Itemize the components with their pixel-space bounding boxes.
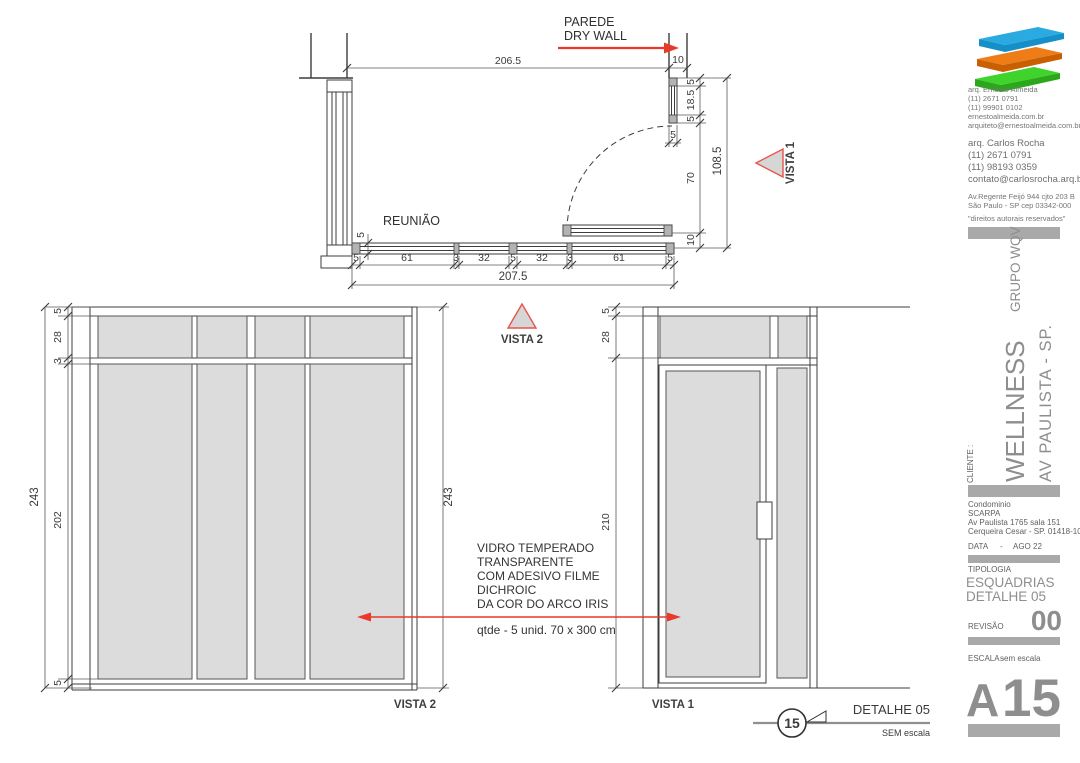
detail-title: DETALHE 05 — [853, 702, 930, 717]
vista1-transom-glass — [660, 316, 807, 358]
dim-offset-10: 10 — [685, 234, 697, 246]
arch1-email: arquiteto@ernestoalmeida.com.br — [968, 121, 1080, 130]
arch1-phone1: (11) 2671 0791 — [968, 94, 1018, 103]
date-label: DATA — [968, 542, 989, 551]
v2-total-right: 243 — [443, 487, 455, 506]
type-line1: ESQUADRIAS — [966, 575, 1055, 590]
v2-dim-0: 5 — [52, 308, 64, 314]
side-partition-plan — [321, 80, 352, 268]
dim-chain-4: 5 — [510, 252, 516, 264]
tipologia-label: TIPOLOGIA — [968, 565, 1012, 574]
elevation-vista2: 5 28 3 202 5 243 243 VISTA 2 — [29, 303, 455, 711]
note-line-3: DICHROIC — [477, 583, 537, 597]
revision-label: REVISÃO — [968, 622, 1004, 631]
vista2-transom-glass — [98, 316, 404, 358]
v1-dim-1: 28 — [600, 331, 612, 343]
sheet-prefix: A — [966, 674, 999, 726]
dim-chain-0: 5 — [353, 252, 359, 264]
arch2-email: contato@carlosrocha.arq.br — [968, 174, 1080, 185]
divider-bar-2 — [968, 485, 1060, 497]
scale-value: sem escala — [1000, 654, 1041, 663]
v2-dim-4: 5 — [52, 680, 64, 686]
note-line-0: VIDRO TEMPERADO — [477, 541, 594, 555]
wall-top-left — [299, 33, 353, 78]
room-label: REUNIÃO — [383, 214, 440, 228]
divider-bar-3 — [968, 555, 1060, 563]
vista2-main-glass — [98, 364, 404, 679]
client-line-2: Av Paulista 1765 sala 151 — [968, 518, 1061, 527]
glass-note: VIDRO TEMPERADO TRANSPARENTE COM ADESIVO… — [357, 541, 681, 637]
arch1-name: arq. Ernesto Almeida — [968, 85, 1038, 94]
v2-dim-2: 3 — [52, 358, 64, 364]
date-sep: - — [1000, 542, 1003, 551]
dim-chain-6: 3 — [567, 252, 573, 264]
date-value: AGO 22 — [1013, 542, 1042, 551]
dim-side-total: 108.5 — [712, 147, 724, 176]
dim-top: 206.5 — [495, 55, 521, 67]
dim-seg-glass: 18.5 — [685, 90, 697, 111]
note-qty: qtde - 5 unid. 70 x 300 cm — [477, 623, 616, 637]
dim-part-thk: 5 — [355, 232, 367, 238]
plan-view: 206.5 10 5 18.5 5 70 10 108.5 5 5 5 61 3… — [299, 15, 797, 346]
divider-bar-5 — [968, 724, 1060, 737]
dim-chain-5: 32 — [536, 252, 548, 264]
arch1-phone2: (11) 99901 0102 — [968, 103, 1023, 112]
project-group: GRUPO WQV — [1008, 226, 1023, 312]
drawing-sheet: 206.5 10 5 18.5 5 70 10 108.5 5 5 5 61 3… — [0, 0, 1080, 763]
note-line-2: COM ADESIVO FILME — [477, 569, 600, 583]
address-line1: Av.Regente Feijó 944 cjto 203 B — [968, 192, 1075, 201]
client-line-3: Cerqueira Cesar - SP. 01418-100 — [968, 527, 1080, 536]
date-row: DATA - AGO 22 — [968, 542, 1042, 551]
sheet-number: 15 — [1002, 669, 1061, 728]
company-logo — [975, 27, 1064, 92]
v2-dim-1: 28 — [52, 331, 64, 343]
detail-marker: 15 DETALHE 05 SEM escala — [753, 702, 930, 738]
note-line-4: DA COR DO ARCO IRIS — [477, 597, 608, 611]
dim-seg-bot: 5 — [685, 116, 697, 122]
cliente-label: CLIENTE : — [966, 445, 975, 483]
vista2-elevation-label: VISTA 2 — [394, 699, 436, 711]
architect1-block: arq. Ernesto Almeida (11) 2671 0791 (11)… — [968, 85, 1080, 130]
scale-label: ESCALA - — [968, 654, 1004, 663]
vista1-marker: VISTA 1 — [756, 141, 797, 184]
vista1-marker-label: VISTA 1 — [785, 141, 797, 184]
project-location: AV PAULISTA - SP. — [1037, 324, 1055, 482]
v1-dim-2: 210 — [600, 513, 612, 531]
glass-note-arrow — [357, 613, 681, 622]
detail-number: 15 — [784, 715, 800, 731]
dim-chain-3: 32 — [478, 252, 490, 264]
vista2-marker-label: VISTA 2 — [501, 334, 543, 346]
arch2-phone2: (11) 98193 0359 — [968, 162, 1037, 173]
revision-row: REVISÃO 00 — [968, 605, 1062, 636]
address-block: Av.Regente Feijó 944 cjto 203 B São Paul… — [968, 192, 1075, 223]
fixed-glass-plan — [669, 78, 677, 123]
wall-label-line1: PAREDE — [564, 15, 614, 29]
door-leaf-plan — [563, 225, 672, 236]
divider-bar-4 — [968, 637, 1060, 645]
vista1-door — [659, 365, 772, 683]
project-title-block: CLIENTE : WELLNESS GRUPO WQV AV PAULISTA… — [966, 226, 1055, 483]
v2-dim-3: 202 — [52, 511, 64, 529]
dim-door-70: 70 — [685, 172, 697, 184]
architect2-block: arq. Carlos Rocha (11) 2671 0791 (11) 98… — [968, 138, 1080, 185]
dry-wall-arrow — [558, 43, 679, 54]
arch2-name: arq. Carlos Rocha — [968, 138, 1045, 149]
door-swing-arc — [567, 126, 672, 231]
client-line-1: SCARPA — [968, 509, 1001, 518]
type-line2: DETALHE 05 — [966, 589, 1046, 604]
arch1-site: ernestoalmeida.com.br — [968, 112, 1045, 121]
dim-chain-7: 61 — [613, 252, 625, 264]
wall-label-line2: DRY WALL — [564, 29, 627, 43]
rights-note: "direitos autorais reservados" — [968, 214, 1066, 223]
client-line-0: Condominio — [968, 500, 1011, 509]
project-name: WELLNESS — [1000, 340, 1030, 482]
dim-wall-10: 10 — [672, 54, 684, 66]
dim-thk-5: 5 — [670, 129, 676, 141]
note-line-1: TRANSPARENTE — [477, 555, 573, 569]
scale-row: ESCALA - sem escala — [968, 654, 1041, 663]
title-block: arq. Ernesto Almeida (11) 2671 0791 (11)… — [966, 27, 1080, 737]
dim-chain-1: 61 — [401, 252, 413, 264]
vista1-elevation-label: VISTA 1 — [652, 699, 695, 711]
revision-value: 00 — [1031, 605, 1062, 636]
client-block: Condominio SCARPA Av Paulista 1765 sala … — [968, 500, 1080, 536]
vista1-sidelight-glass — [777, 368, 807, 678]
dim-chain-8: 5 — [667, 252, 673, 264]
address-line2: São Paulo - SP cep 03342-000 — [968, 201, 1071, 210]
sheet-number-block: A 15 — [966, 669, 1061, 728]
detail-scale: SEM escala — [882, 728, 930, 738]
vista2-marker: VISTA 2 — [501, 304, 543, 346]
elevation-vista1: 5 28 210 VISTA 1 — [600, 303, 910, 711]
dim-total: 207.5 — [499, 271, 528, 283]
dim-seg-top: 5 — [685, 79, 697, 85]
v2-total-left: 243 — [29, 487, 41, 506]
door-handle — [757, 502, 772, 539]
dim-chain-2: 3 — [453, 252, 459, 264]
arch2-phone1: (11) 2671 0791 — [968, 150, 1032, 161]
v1-dim-0: 5 — [600, 308, 612, 314]
